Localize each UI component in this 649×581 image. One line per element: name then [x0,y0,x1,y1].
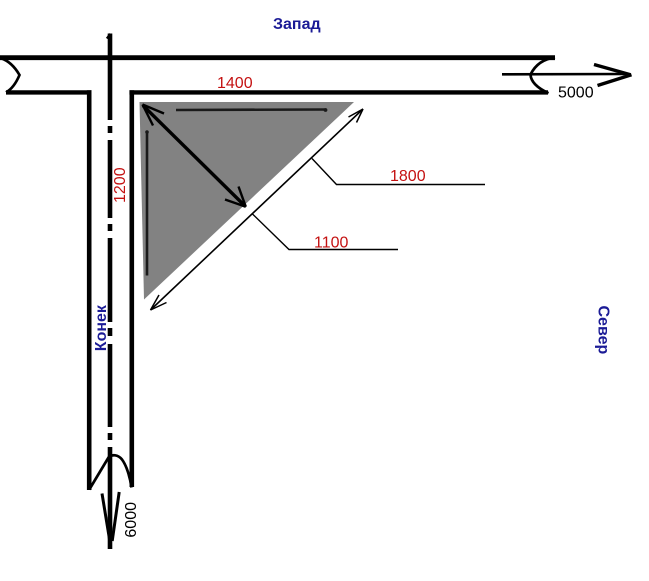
svg-text:1400: 1400 [217,75,253,92]
svg-text:1800: 1800 [390,168,426,185]
svg-text:Север: Север [595,306,612,355]
svg-text:1100: 1100 [314,235,349,252]
svg-text:6000: 6000 [123,502,140,538]
svg-text:Конек: Конек [93,304,110,351]
svg-text:Запад: Запад [273,16,321,33]
svg-text:5000: 5000 [558,84,594,101]
svg-text:1200: 1200 [112,167,129,203]
